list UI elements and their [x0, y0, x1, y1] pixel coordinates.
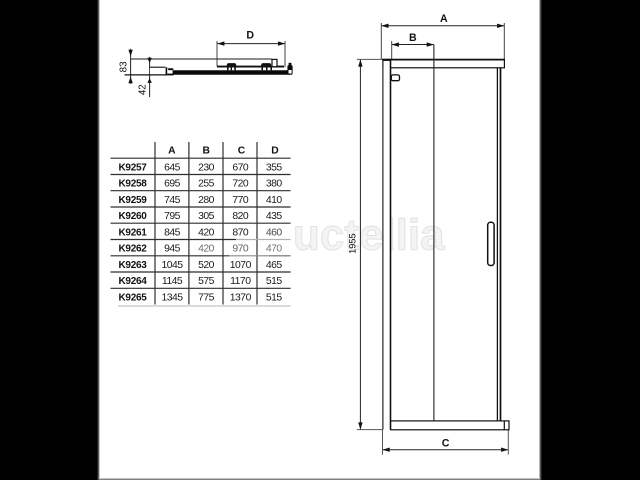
svg-text:305: 305	[198, 211, 215, 222]
svg-text:845: 845	[164, 227, 181, 238]
svg-text:1145: 1145	[162, 276, 183, 287]
svg-text:K9259: K9259	[119, 195, 148, 206]
svg-text:380: 380	[266, 179, 283, 190]
svg-text:460: 460	[266, 227, 283, 238]
svg-text:770: 770	[232, 195, 249, 206]
svg-text:1955: 1955	[348, 233, 358, 253]
svg-text:K9262: K9262	[119, 244, 148, 255]
svg-text:K9260: K9260	[119, 211, 148, 222]
svg-text:A: A	[440, 13, 448, 25]
svg-text:645: 645	[164, 162, 181, 173]
svg-text:355: 355	[266, 162, 283, 173]
svg-text:K9263: K9263	[119, 260, 148, 271]
svg-text:470: 470	[266, 244, 283, 255]
svg-text:945: 945	[164, 244, 181, 255]
svg-text:670: 670	[232, 162, 249, 173]
svg-text:745: 745	[164, 195, 181, 206]
svg-text:C: C	[442, 438, 450, 450]
svg-text:795: 795	[164, 211, 181, 222]
svg-text:K9261: K9261	[119, 227, 148, 238]
svg-text:435: 435	[266, 211, 283, 222]
svg-text:230: 230	[198, 162, 215, 173]
svg-text:515: 515	[266, 292, 283, 303]
svg-text:K9264: K9264	[119, 276, 148, 287]
svg-text:83: 83	[119, 61, 130, 72]
svg-text:870: 870	[232, 227, 249, 238]
svg-text:280: 280	[198, 195, 215, 206]
svg-text:420: 420	[198, 244, 215, 255]
svg-text:B: B	[202, 145, 209, 156]
svg-text:42: 42	[138, 84, 149, 95]
svg-text:255: 255	[198, 179, 215, 190]
svg-text:K9265: K9265	[119, 292, 148, 303]
svg-text:A: A	[168, 145, 176, 156]
svg-text:K9258: K9258	[119, 179, 148, 190]
svg-text:465: 465	[266, 260, 283, 271]
svg-text:420: 420	[198, 227, 215, 238]
svg-text:410: 410	[266, 195, 283, 206]
svg-text:1070: 1070	[230, 260, 252, 271]
svg-text:1170: 1170	[230, 276, 251, 287]
svg-text:720: 720	[232, 179, 249, 190]
svg-text:575: 575	[198, 276, 215, 287]
svg-text:uctellia: uctellia	[293, 211, 445, 260]
svg-text:970: 970	[232, 244, 249, 255]
svg-text:1045: 1045	[161, 260, 183, 271]
svg-text:775: 775	[198, 292, 215, 303]
svg-text:C: C	[238, 145, 246, 156]
svg-text:695: 695	[164, 179, 181, 190]
svg-text:K9257: K9257	[119, 162, 148, 173]
svg-text:B: B	[409, 32, 417, 44]
svg-text:820: 820	[232, 211, 249, 222]
svg-text:D: D	[246, 30, 254, 42]
svg-text:D: D	[271, 145, 278, 156]
svg-text:1345: 1345	[161, 292, 183, 303]
svg-text:515: 515	[266, 276, 283, 287]
svg-text:520: 520	[198, 260, 215, 271]
svg-text:1370: 1370	[230, 292, 252, 303]
